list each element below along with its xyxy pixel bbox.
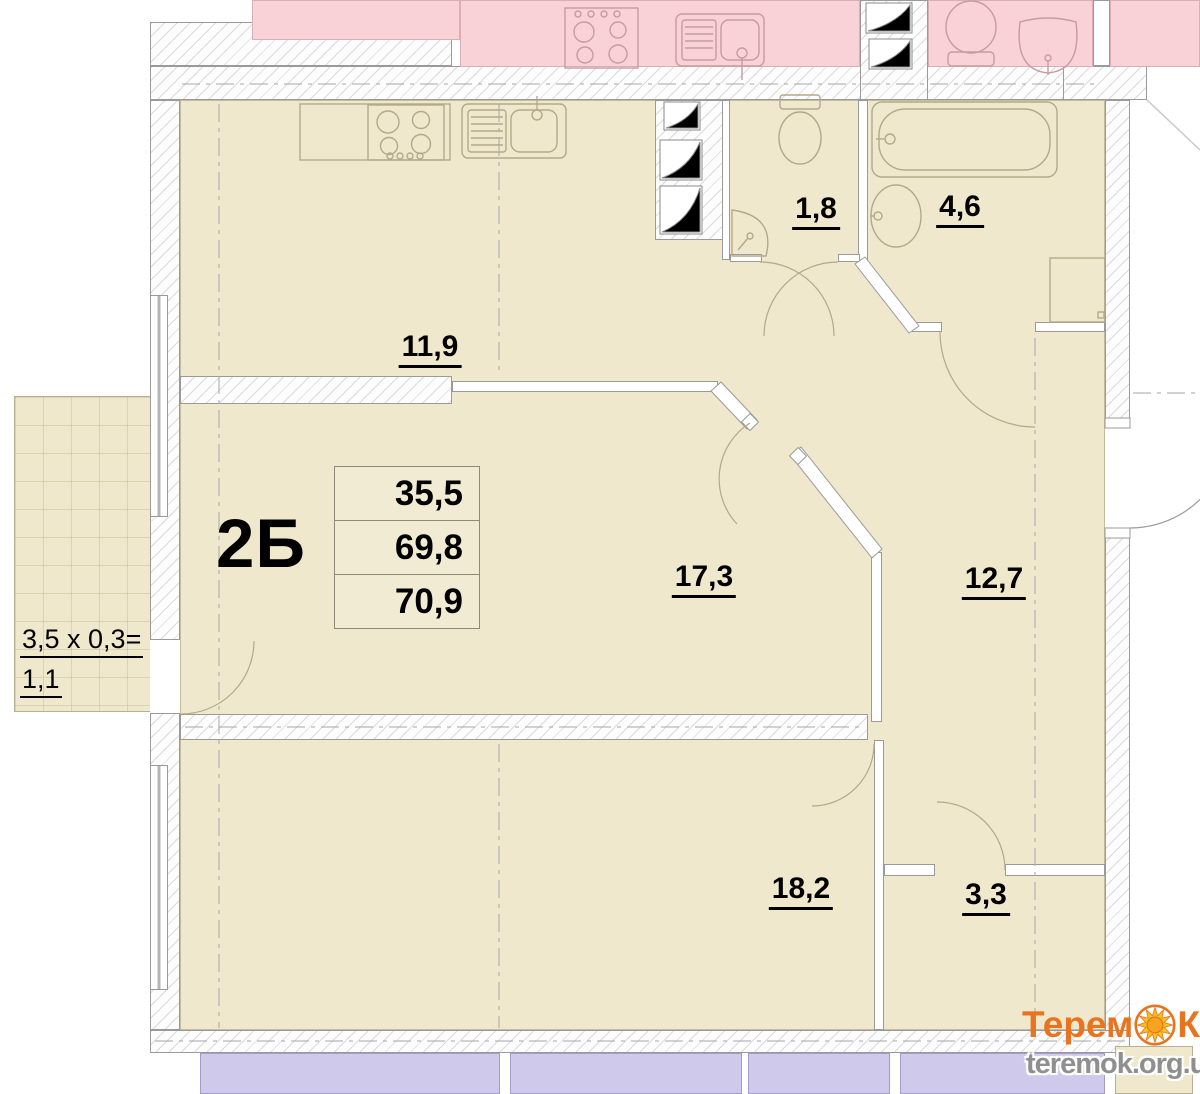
partition-bath-bottom-left	[912, 322, 942, 332]
logo-text-right: К	[1177, 1004, 1200, 1046]
lower-balcony-3	[748, 1053, 890, 1094]
partition-kitchen-wc	[722, 100, 730, 260]
partition-pink-divider	[1093, 0, 1110, 66]
wall-bottom-band	[150, 1030, 1130, 1053]
partition-hall-living-vertical	[871, 552, 882, 722]
vent-shaft-top	[860, 0, 928, 100]
areas-table-total: 70,9	[335, 574, 479, 628]
areas-table-living: 35,5	[335, 467, 479, 520]
balcony-area: 1,1	[20, 664, 62, 698]
adjacent-unit-kitchen	[460, 0, 860, 67]
adjacent-unit-top-left	[252, 0, 460, 40]
balcony-door-opening	[150, 639, 180, 714]
entrance-door-opening	[1105, 428, 1130, 528]
label-kitchen-area: 11,9	[399, 330, 462, 368]
label-storage-area: 3,3	[962, 878, 1010, 916]
label-bath-area: 4,6	[936, 190, 984, 228]
label-wc-area: 1,8	[792, 192, 840, 230]
floor-plan: 11,9 1,8 4,6 17,3 12,7 18,2 3,3 3,5 x 0,…	[0, 0, 1200, 1094]
sun-icon	[1134, 1004, 1176, 1046]
kitchen-window	[150, 295, 168, 517]
wall-top-right-lintel	[1063, 66, 1147, 100]
balcony-formula: 3,5 x 0,3=	[20, 624, 143, 658]
teremok-url: teremok.org.ua	[1026, 1048, 1200, 1081]
logo-text-left: Терем	[1022, 1004, 1133, 1046]
areas-table-usable: 69,8	[335, 520, 479, 574]
lower-balcony-1	[200, 1053, 500, 1094]
adjacent-unit-right	[1110, 0, 1200, 67]
partition-storage-top-right	[1005, 864, 1105, 876]
vent-shaft-kitchen	[655, 100, 730, 240]
partition-wc-bottom-left	[730, 254, 762, 262]
partition-wc-bottom-right	[838, 254, 860, 262]
label-bedroom-area: 18,2	[769, 872, 833, 910]
partition-kitchen-hall	[452, 381, 718, 392]
bedroom-window	[150, 765, 168, 990]
wall-right-lower	[1105, 528, 1130, 1053]
building-edge-line	[1147, 100, 1200, 150]
areas-table: 35,5 69,8 70,9	[334, 466, 480, 629]
adjacent-unit-bathroom	[928, 0, 1093, 67]
partition-wc-bath	[858, 100, 868, 265]
label-hall-area: 12,7	[962, 562, 1026, 600]
partition-bath-bottom-right	[1035, 322, 1105, 332]
partition-bedroom-storage	[874, 740, 884, 1030]
teremok-logo: Терем К	[1022, 1004, 1200, 1046]
lower-balcony-2	[510, 1053, 742, 1094]
partition-storage-top-left	[884, 864, 935, 876]
entrance-door-arc	[1130, 428, 1200, 528]
wall-living-bedroom	[180, 714, 868, 740]
wall-top-band	[150, 66, 1105, 100]
apartment-label: 2Б	[216, 504, 306, 583]
label-living-area: 17,3	[672, 560, 736, 598]
wall-right-upper	[1105, 100, 1130, 428]
wall-kitchen-living	[180, 376, 452, 404]
